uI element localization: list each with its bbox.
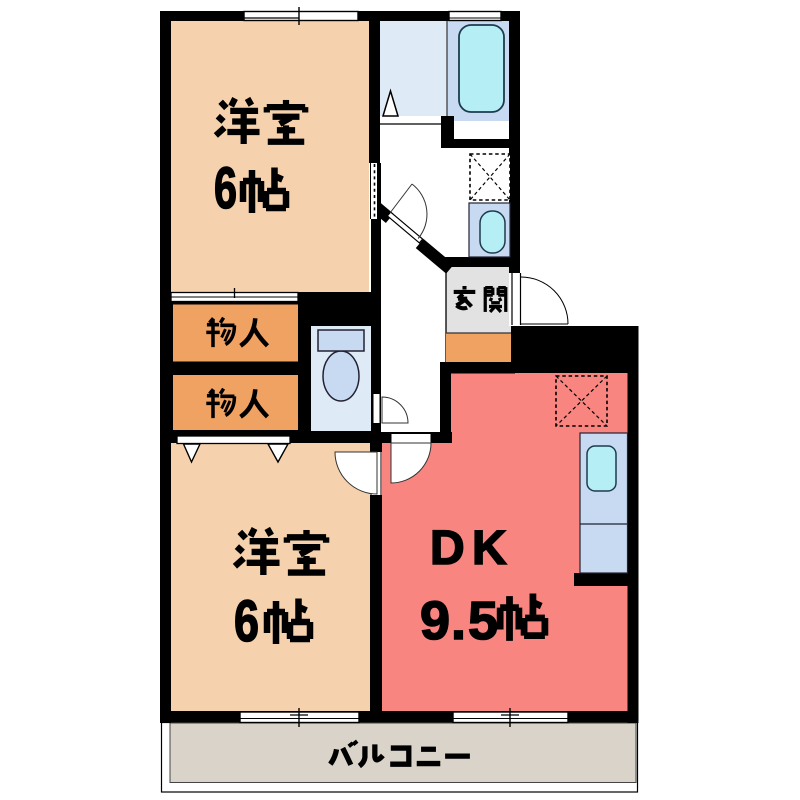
svg-text:6: 6	[234, 589, 259, 654]
svg-text:5: 5	[468, 591, 498, 651]
svg-text:9: 9	[420, 591, 450, 651]
svg-text:.: .	[451, 591, 466, 651]
svg-text:K: K	[472, 522, 507, 575]
svg-text:D: D	[430, 522, 465, 575]
svg-text:6: 6	[214, 156, 237, 221]
